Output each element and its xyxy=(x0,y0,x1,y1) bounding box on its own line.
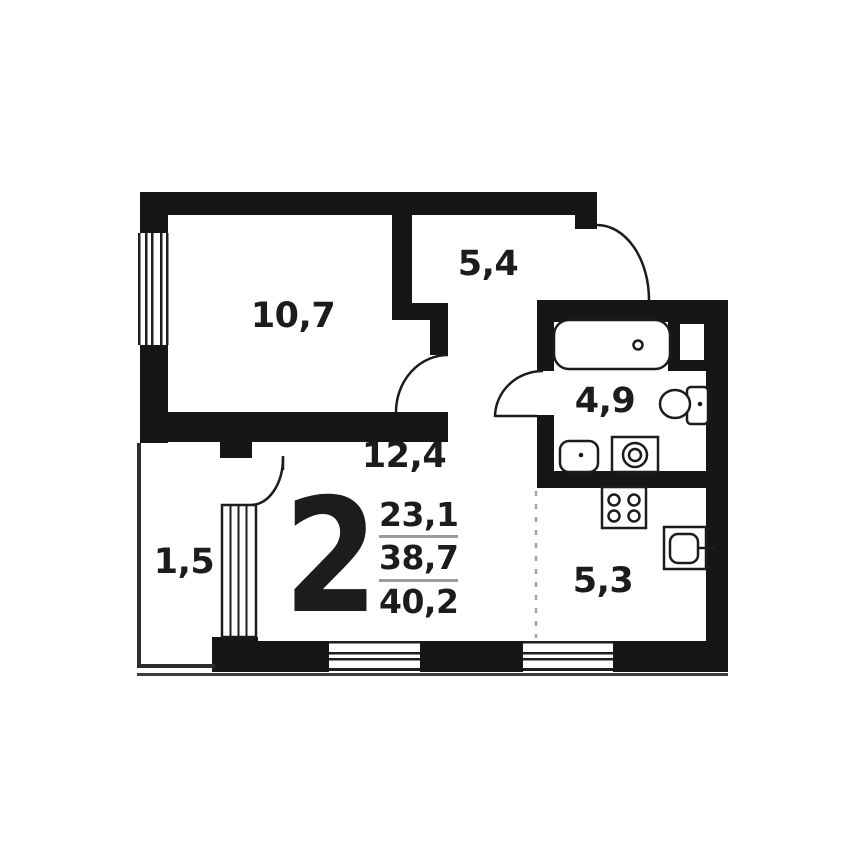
area-summary: 23,1 38,7 40,2 xyxy=(379,499,458,618)
room-area-wardrobe: 1,5 xyxy=(154,542,215,582)
room-area-bathroom: 4,9 xyxy=(575,381,636,421)
wall-segment xyxy=(537,300,554,371)
washing-machine-icon xyxy=(612,437,658,472)
wall-segment xyxy=(140,215,168,233)
window-bottom-right xyxy=(523,641,613,672)
area-value-middle: 38,7 xyxy=(379,542,458,574)
room-area-kitchen: 5,3 xyxy=(573,561,634,601)
window-left xyxy=(138,233,170,345)
toilet-icon xyxy=(660,387,708,424)
door-arc-bedroom xyxy=(396,355,448,412)
bathtub-icon xyxy=(554,320,670,369)
door-arc-bathroom xyxy=(495,371,543,417)
room-area-bedroom: 10,7 xyxy=(251,296,335,336)
sink-icon xyxy=(560,441,598,472)
wall-segment xyxy=(537,300,728,322)
door-arc-wardrobe xyxy=(251,458,283,505)
wall-segment xyxy=(220,442,252,458)
wall-segment xyxy=(140,192,597,215)
door-arc-entrance xyxy=(597,225,649,300)
wall-segment xyxy=(420,641,523,672)
wall-segment xyxy=(430,303,448,355)
window-opening xyxy=(523,641,613,672)
window-opening xyxy=(138,233,170,345)
area-value-living: 23,1 xyxy=(379,499,458,531)
thin-wall xyxy=(137,443,141,668)
wardrobe-icon xyxy=(222,505,256,637)
wall-segment xyxy=(575,215,597,229)
wall-segment xyxy=(537,471,706,488)
duct-niche xyxy=(680,324,704,360)
stove-icon xyxy=(602,487,646,528)
wall-segment xyxy=(706,300,728,672)
exterior-edge-line xyxy=(137,673,728,676)
area-value-total: 40,2 xyxy=(379,586,458,618)
rooms-count: 2 xyxy=(284,478,379,636)
thin-wall xyxy=(137,664,215,668)
room-area-hallway: 5,4 xyxy=(458,244,519,284)
floor-plan: 10,7 5,4 4,9 12,4 1,5 5,3 2 23,1 38,7 40… xyxy=(0,0,864,864)
floor-plan-drawing xyxy=(0,0,864,864)
